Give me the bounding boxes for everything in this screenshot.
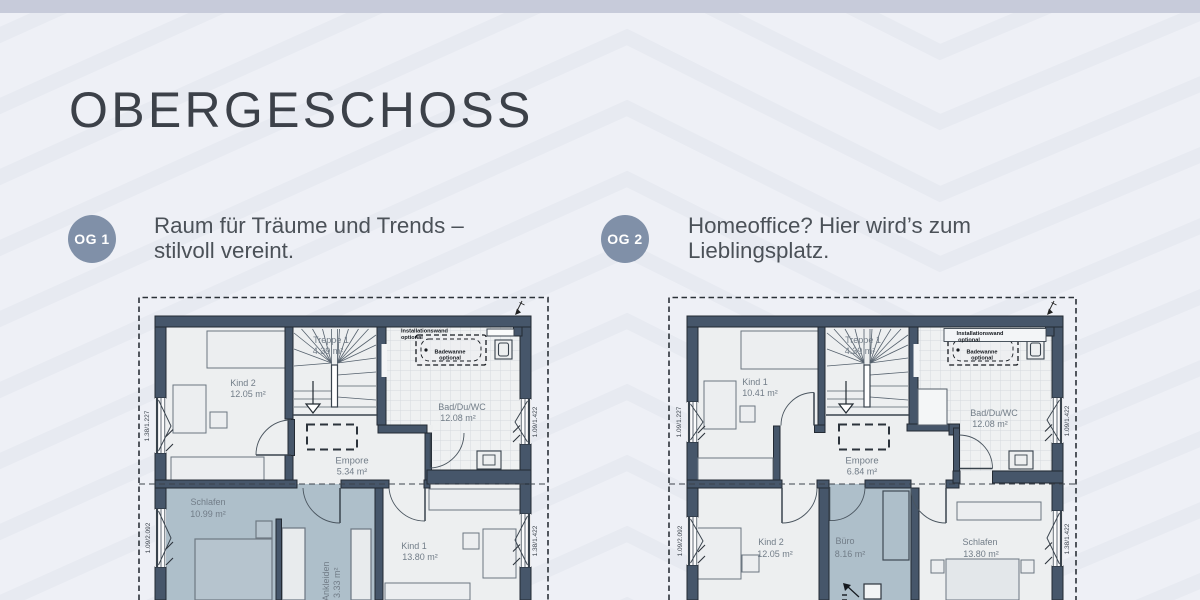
svg-text:Kind 2: Kind 2: [758, 537, 784, 547]
svg-text:Kind 2: Kind 2: [230, 378, 256, 388]
svg-text:6.84 m²: 6.84 m²: [847, 467, 878, 477]
svg-text:3.33 m²: 3.33 m²: [332, 567, 342, 598]
svg-text:12.05 m²: 12.05 m²: [757, 549, 793, 559]
svg-text:Bad/Du/WC: Bad/Du/WC: [438, 402, 486, 412]
svg-text:OG 1: OG 1: [74, 231, 109, 247]
svg-text:optional: optional: [401, 335, 423, 341]
svg-text:10.41 m²: 10.41 m²: [742, 388, 778, 398]
svg-text:13.80 m²: 13.80 m²: [963, 549, 999, 559]
svg-text:Empore: Empore: [845, 456, 878, 467]
svg-text:Treppe 1: Treppe 1: [845, 335, 881, 345]
svg-text:Homeoffice? Hier wird’s zum: Homeoffice? Hier wird’s zum: [688, 213, 971, 238]
svg-text:4.39 m²: 4.39 m²: [845, 346, 876, 356]
svg-text:12.08 m²: 12.08 m²: [440, 413, 476, 423]
svg-text:Empore: Empore: [335, 456, 368, 467]
svg-text:stilvoll vereint.: stilvoll vereint.: [154, 238, 294, 263]
svg-text:13.80 m²: 13.80 m²: [402, 552, 438, 562]
svg-text:1.09/2.092: 1.09/2.092: [677, 525, 684, 556]
svg-text:Installationswand: Installationswand: [957, 331, 1005, 337]
svg-text:Schlafen: Schlafen: [190, 497, 225, 507]
svg-text:optional: optional: [971, 356, 993, 362]
svg-text:Lieblingsplatz.: Lieblingsplatz.: [688, 238, 829, 263]
svg-text:Kind 1: Kind 1: [401, 541, 427, 551]
svg-text:1.09/1.422: 1.09/1.422: [1064, 405, 1071, 436]
svg-text:OG 2: OG 2: [607, 231, 642, 247]
svg-text:Büro: Büro: [835, 536, 854, 546]
svg-text:1.09/2.092: 1.09/2.092: [145, 522, 152, 553]
svg-text:1.38/1.227: 1.38/1.227: [144, 410, 151, 441]
svg-text:optional: optional: [958, 338, 980, 344]
svg-text:8.16 m²: 8.16 m²: [835, 549, 866, 559]
svg-text:Treppe 1: Treppe 1: [313, 335, 349, 345]
svg-text:Kind 1: Kind 1: [742, 377, 768, 387]
svg-text:Installationswand: Installationswand: [401, 329, 449, 335]
svg-text:Raum für Träume und Trends –: Raum für Träume und Trends –: [154, 213, 464, 238]
svg-text:Bad/Du/WC: Bad/Du/WC: [970, 408, 1018, 418]
svg-text:1.38/1.422: 1.38/1.422: [1064, 523, 1071, 554]
svg-text:1.09/1.422: 1.09/1.422: [532, 406, 539, 437]
svg-text:Ankleiden: Ankleiden: [321, 561, 331, 600]
svg-text:4.39 m²: 4.39 m²: [313, 346, 344, 356]
svg-text:12.05 m²: 12.05 m²: [230, 389, 266, 399]
svg-text:1.38/1.422: 1.38/1.422: [532, 525, 539, 556]
svg-text:5.34 m²: 5.34 m²: [337, 467, 368, 477]
svg-text:OBERGESCHOSS: OBERGESCHOSS: [69, 82, 534, 138]
svg-text:Schlafen: Schlafen: [962, 537, 997, 547]
svg-text:12.08 m²: 12.08 m²: [972, 419, 1008, 429]
svg-text:10.99 m²: 10.99 m²: [190, 509, 226, 519]
svg-text:1.09/1.227: 1.09/1.227: [676, 406, 683, 437]
svg-text:optional: optional: [439, 356, 461, 362]
